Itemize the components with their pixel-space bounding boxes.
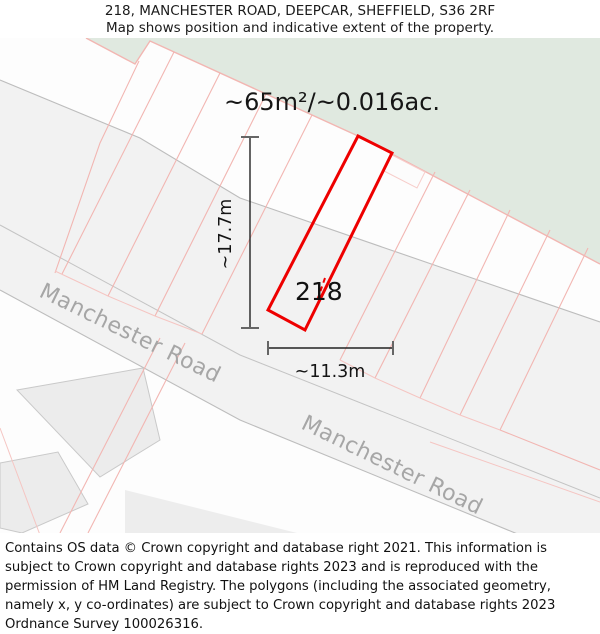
attribution-text: Contains OS data © Crown copyright and d… (5, 539, 596, 634)
page-title: 218, MANCHESTER ROAD, DEEPCAR, SHEFFIELD… (0, 3, 600, 20)
width-dimension-label: ~11.3m (295, 362, 366, 382)
page-subtitle: Map shows position and indicative extent… (0, 20, 600, 36)
property-map: ~17.7m ~11.3m ~65m²/~0.016ac. 218 Manche… (0, 38, 600, 533)
area-label: ~65m²/~0.016ac. (224, 88, 440, 116)
height-dimension-label: ~17.7m (216, 199, 236, 270)
property-number-label: 218 (295, 277, 343, 306)
map-canvas: ~17.7m ~11.3m ~65m²/~0.016ac. 218 Manche… (0, 38, 600, 533)
header: 218, MANCHESTER ROAD, DEEPCAR, SHEFFIELD… (0, 0, 600, 38)
